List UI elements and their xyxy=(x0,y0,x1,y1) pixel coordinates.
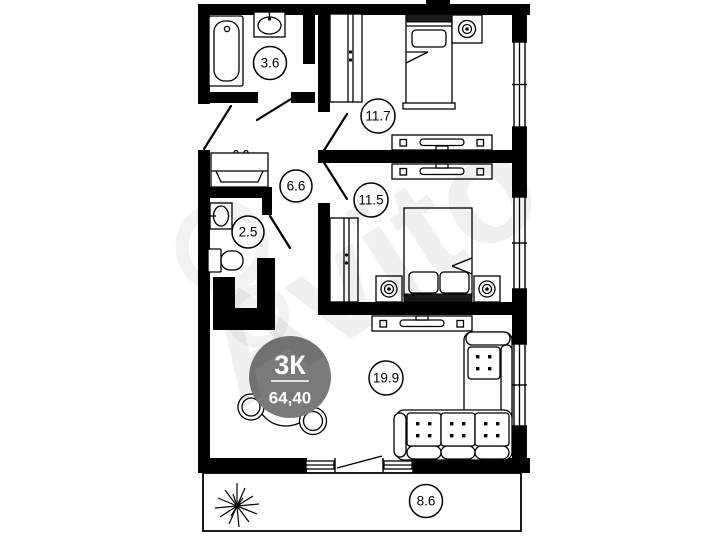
room-label-balcony: 8.6 xyxy=(410,485,443,518)
bedroom1-nightstand-icon xyxy=(452,15,482,43)
bathroom-door-leaf xyxy=(257,99,291,120)
living-area-text: 19.9 xyxy=(373,371,399,386)
wall-bottom-left xyxy=(198,458,307,473)
wall-right-3 xyxy=(512,289,527,344)
wall-top xyxy=(200,4,530,15)
floorplan-drawing: 3.6 11.7 6.6 2.5 11.5 19.9 8.6 3К xyxy=(0,0,720,540)
balcony xyxy=(203,473,521,531)
room-label-bathroom: 3.6 xyxy=(254,47,287,80)
room-label-living: 19.9 xyxy=(369,361,403,395)
balcony-door-leaf xyxy=(337,456,382,468)
room-label-hallway: 6.6 xyxy=(280,170,312,202)
entrance-door-leaf xyxy=(204,106,231,149)
wall-right-4 xyxy=(512,426,527,473)
bedroom1-wardrobe-icon xyxy=(330,14,362,102)
wall-bathroom-bottom-stub xyxy=(291,92,315,103)
wall-top-tab xyxy=(426,0,450,5)
floorplan-page: 3.6 11.7 6.6 2.5 11.5 19.9 8.6 3К xyxy=(0,0,720,540)
balcony-door xyxy=(305,456,413,472)
bathroom-sink-icon xyxy=(254,12,285,37)
bedroom1-area-text: 11.7 xyxy=(365,109,390,124)
wall-left-upper xyxy=(198,4,210,104)
hallway-area-text: 6.6 xyxy=(287,179,306,194)
plant-icon xyxy=(215,483,259,527)
corner-sofa-icon xyxy=(394,332,512,460)
wall-right-1 xyxy=(512,4,527,42)
bedroom1-door-leaf xyxy=(323,114,347,152)
room-label-bedroom1: 11.7 xyxy=(361,99,395,133)
bathtub-icon xyxy=(209,16,243,86)
single-bed-icon xyxy=(403,14,455,109)
window-bedroom1 xyxy=(512,42,527,127)
bathroom-area-text: 3.6 xyxy=(261,56,280,71)
wall-bedroom1-left xyxy=(318,15,330,112)
wall-wc-right-upper xyxy=(262,187,272,215)
wall-bathroom-bottom xyxy=(210,92,258,103)
balcony-area-text: 8.6 xyxy=(417,494,436,509)
window-living xyxy=(512,344,527,426)
wall-bathroom-right xyxy=(303,4,315,64)
hall-wardrobe-icon xyxy=(211,151,268,188)
